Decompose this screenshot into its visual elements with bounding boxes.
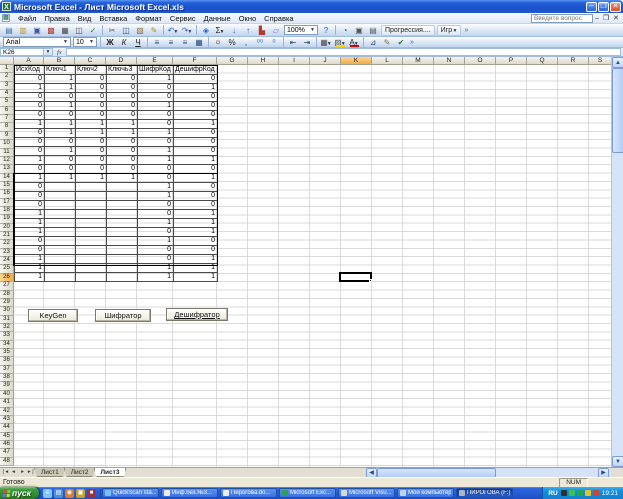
select-all-corner[interactable] [0,57,14,65]
cell-A5[interactable]: 0 [15,102,45,111]
column-header-R[interactable]: R [558,57,589,65]
cell-A18[interactable]: 1 [15,219,45,228]
align-right-icon[interactable]: ≡ [179,37,192,48]
cell-E17[interactable]: 0 [138,210,174,219]
row-header-39[interactable]: 39 [0,382,14,390]
cell-B7[interactable]: 1 [45,120,76,129]
row-header-21[interactable]: 21 [0,232,14,240]
cell-D22[interactable] [107,255,138,264]
cell-C22[interactable] [76,255,107,264]
row-header-5[interactable]: 5 [0,98,14,106]
cell-C15[interactable] [76,192,107,201]
quick-launch-ie-icon[interactable]: e [43,489,52,498]
row-header-17[interactable]: 17 [0,199,14,207]
row-header-16[interactable]: 16 [0,190,14,198]
row-header-40[interactable]: 40 [0,391,14,399]
row-header-22[interactable]: 22 [0,240,14,248]
cell-B9[interactable]: 0 [45,138,76,147]
cell-D11[interactable]: 0 [107,156,138,165]
paste-icon[interactable]: ▧ [134,25,147,36]
scroll-up-icon[interactable]: ▲ [612,57,623,68]
tray-icon-shield[interactable] [561,490,567,496]
selected-cell-K26[interactable] [339,272,372,282]
cell-A20[interactable]: 0 [15,237,45,246]
cell-E12[interactable]: 0 [138,165,174,174]
undo-icon-dropdown[interactable]: ▼ [173,29,178,35]
cell-C18[interactable] [76,219,107,228]
column-header-K[interactable]: K [341,57,372,65]
quick-launch-folder-icon[interactable]: ▣ [76,489,85,498]
vertical-scrollbar[interactable]: ▲ ▼ [611,57,623,467]
row-header-31[interactable]: 31 [0,316,14,324]
cell-B13[interactable]: 1 [45,174,76,183]
cell-C23[interactable] [76,264,107,273]
cell-E19[interactable]: 0 [138,228,174,237]
cell-A24[interactable]: 1 [15,273,45,282]
cell-F2[interactable]: 0 [174,75,218,84]
cell-F20[interactable]: 0 [174,237,218,246]
name-box-dropdown-icon[interactable]: ▼ [44,48,53,56]
close-button[interactable]: ✕ [610,2,621,12]
cell-F9[interactable]: 0 [174,138,218,147]
workbook-minimize-icon[interactable]: – [593,14,601,23]
row-header-33[interactable]: 33 [0,332,14,340]
row-header-2[interactable]: 2 [0,73,14,81]
font-name-dropdown-icon[interactable]: ▼ [63,38,68,47]
column-header-M[interactable]: M [403,57,434,65]
cell-B21[interactable] [45,246,76,255]
cell-C3[interactable]: 0 [76,84,107,93]
cell-C17[interactable] [76,210,107,219]
decipher-button[interactable]: Дешифратор [166,308,228,321]
cell-C16[interactable] [76,201,107,210]
row-header-1[interactable]: 1 [0,65,14,73]
cell-A16[interactable]: 0 [15,201,45,210]
cell-F15[interactable]: 0 [174,192,218,201]
cell-A3[interactable]: 1 [15,84,45,93]
cell-E15[interactable]: 1 [138,192,174,201]
row-header-27[interactable]: 27 [0,282,14,290]
igr-button[interactable]: Игр ▼ [437,25,462,36]
cell-F10[interactable]: 0 [174,147,218,156]
row-header-3[interactable]: 3 [0,82,14,90]
task-button-doc-infbez[interactable]: Инф.без.№3... [161,488,218,498]
cell-B4[interactable]: 0 [45,93,76,102]
cell-E13[interactable]: 0 [138,174,174,183]
autosum-icon-dropdown[interactable]: ▼ [220,29,225,35]
first-sheet-icon[interactable]: ❘◂ [0,468,9,477]
cell-D21[interactable] [107,246,138,255]
menu-file[interactable]: Файл [14,13,40,24]
cell-D2[interactable]: 0 [107,75,138,84]
row-header-28[interactable]: 28 [0,291,14,299]
cell-B23[interactable] [45,264,76,273]
cipher-button[interactable]: Шифратор [95,309,151,322]
row-header-13[interactable]: 13 [0,165,14,173]
cell-F8[interactable]: 0 [174,129,218,138]
help-icon[interactable]: ? [320,25,333,36]
cell-C7[interactable]: 1 [76,120,107,129]
start-button[interactable]: пуск [0,487,39,499]
sort-ascending-icon[interactable]: ↓ [228,25,241,36]
hyperlink-icon[interactable]: ◈ [200,25,213,36]
row-header-38[interactable]: 38 [0,374,14,382]
row-header-26[interactable]: 26 [0,274,14,282]
cell-C14[interactable] [76,183,107,192]
cell-C2[interactable]: 0 [76,75,107,84]
cell-C19[interactable] [76,228,107,237]
font-color-icon[interactable]: А▼ [348,37,361,48]
row-header-7[interactable]: 7 [0,115,14,123]
cell-D20[interactable] [107,237,138,246]
name-box[interactable]: K26 [0,48,44,56]
row-header-9[interactable]: 9 [0,132,14,140]
cell-F14[interactable]: 0 [174,183,218,192]
column-header-F[interactable]: F [173,57,217,65]
cell-A4[interactable]: 0 [15,93,45,102]
progression-button[interactable]: Прогрессия.... [381,25,435,36]
row-header-18[interactable]: 18 [0,207,14,215]
zoom-box[interactable]: 100%▼ [284,25,318,35]
redo-icon-dropdown[interactable]: ▼ [187,29,192,35]
cell-E11[interactable]: 1 [138,156,174,165]
cell-D6[interactable]: 0 [107,111,138,120]
cell-A19[interactable]: 1 [15,228,45,237]
cell-F21[interactable]: 0 [174,246,218,255]
task-button-excel[interactable]: Microsoft Exc... [279,488,336,498]
row-header-29[interactable]: 29 [0,299,14,307]
cell-C11[interactable]: 0 [76,156,107,165]
cell-D23[interactable] [107,264,138,273]
cell-E5[interactable]: 1 [138,102,174,111]
cell-F4[interactable]: 0 [174,93,218,102]
cell-D4[interactable]: 0 [107,93,138,102]
column-header-Q[interactable]: Q [527,57,558,65]
column-header-J[interactable]: J [310,57,341,65]
save-icon[interactable]: ▣ [31,25,44,36]
format-painter-icon[interactable]: ✎ [148,25,161,36]
accept-icon[interactable]: ✔ [395,37,408,48]
cell-F19[interactable]: 1 [174,228,218,237]
cell-F5[interactable]: 0 [174,102,218,111]
cell-E14[interactable]: 1 [138,183,174,192]
cell-E7[interactable]: 0 [138,120,174,129]
cell-D10[interactable]: 0 [107,147,138,156]
tab-лист2[interactable]: Лист2 [64,468,96,477]
row-header-15[interactable]: 15 [0,182,14,190]
cell-D13[interactable]: 1 [107,174,138,183]
cell-C20[interactable] [76,237,107,246]
igr-button-dropdown[interactable]: ▼ [451,28,457,34]
undo-icon[interactable]: ↶▼ [167,25,180,36]
row-header-45[interactable]: 45 [0,433,14,441]
cell-A6[interactable]: 0 [15,111,45,120]
cut-icon[interactable]: ✂ [106,25,119,36]
cell-B22[interactable] [45,255,76,264]
cell-F16[interactable]: 0 [174,201,218,210]
cell-B24[interactable] [45,273,76,282]
cell-D15[interactable] [107,192,138,201]
vertical-scroll-thumb[interactable] [612,68,623,153]
cell-B3[interactable]: 1 [45,84,76,93]
cell-D8[interactable]: 1 [107,129,138,138]
cell-F6[interactable]: 0 [174,111,218,120]
camera-icon[interactable]: ▣ [353,25,366,36]
tray-icon-volume[interactable] [585,490,591,496]
drawing-icon[interactable]: ▱ [270,25,283,36]
cell-B12[interactable]: 0 [45,165,76,174]
cell-B16[interactable] [45,201,76,210]
prev-sheet-icon[interactable]: ◂ [9,468,18,477]
cell-E21[interactable]: 0 [138,246,174,255]
cell-E9[interactable]: 0 [138,138,174,147]
spelling-icon[interactable]: ✓ [87,25,100,36]
copy-icon[interactable]: ◫ [120,25,133,36]
menu-format[interactable]: Формат [131,13,166,24]
font-size-dropdown-icon[interactable]: ▼ [89,38,94,47]
cell-F18[interactable]: 1 [174,219,218,228]
cell-F17[interactable]: 1 [174,210,218,219]
toolbar-options-icon[interactable]: » [462,27,470,34]
column-header-G[interactable]: G [217,57,248,65]
cell-D3[interactable]: 0 [107,84,138,93]
cell-B5[interactable]: 1 [45,102,76,111]
row-header-20[interactable]: 20 [0,224,14,232]
chart-wizard-icon[interactable]: ▙ [256,25,269,36]
cell-F22[interactable]: 1 [174,255,218,264]
cell-F12[interactable]: 0 [174,165,218,174]
cell-F13[interactable]: 1 [174,174,218,183]
row-header-36[interactable]: 36 [0,357,14,365]
cell-F11[interactable]: 1 [174,156,218,165]
cell-E22[interactable]: 0 [138,255,174,264]
column-header-P[interactable]: P [496,57,527,65]
cell-D17[interactable] [107,210,138,219]
cell-F3[interactable]: 1 [174,84,218,93]
decrease-decimal-icon[interactable]: ⁰ [268,37,281,48]
menu-insert[interactable]: Вставка [95,13,131,24]
cell-A15[interactable]: 0 [15,192,45,201]
row-header-10[interactable]: 10 [0,140,14,148]
cell-A22[interactable]: 1 [15,255,45,264]
row-header-46[interactable]: 46 [0,441,14,449]
font-size-box[interactable]: 10▼ [73,37,97,47]
column-header-B[interactable]: B [44,57,75,65]
increase-indent-icon[interactable]: ⇥ [301,37,314,48]
restore-button[interactable]: ❐ [598,2,609,12]
cell-B11[interactable]: 0 [45,156,76,165]
cell-B18[interactable] [45,219,76,228]
cell-A21[interactable]: 0 [15,246,45,255]
cell-A23[interactable]: 1 [15,264,45,273]
pen-icon[interactable]: ✎ [381,37,394,48]
bold-icon[interactable]: Ж [104,37,117,48]
menu-window[interactable]: Окно [235,13,260,24]
cell-E2[interactable]: 1 [138,75,174,84]
row-header-4[interactable]: 4 [0,90,14,98]
underline-icon[interactable]: Ч [132,37,145,48]
row-header-42[interactable]: 42 [0,408,14,416]
column-header-H[interactable]: H [248,57,279,65]
font-name-box[interactable]: Arial▼ [3,37,71,47]
draw-select-icon[interactable]: ⊿ [367,37,380,48]
keygen-button[interactable]: KeyGen [28,309,78,322]
column-header-A[interactable]: A [14,57,44,65]
task-button-quickscan[interactable]: QuickScan sta... [102,488,159,498]
cell-A17[interactable]: 1 [15,210,45,219]
quick-launch-desktop-icon[interactable]: ▤ [54,489,63,498]
fill-handle[interactable] [369,279,372,282]
task-button-visual[interactable]: Microsoft Visu... [338,488,395,498]
scroll-down-icon[interactable]: ▼ [612,456,623,467]
cell-D18[interactable] [107,219,138,228]
cell-C13[interactable]: 1 [76,174,107,183]
fill-color-icon[interactable]: ▨▼ [334,37,347,48]
row-header-25[interactable]: 25 [0,265,14,273]
menu-tools[interactable]: Сервис [166,13,200,24]
borders-icon[interactable]: ▦▼ [320,37,333,48]
decrease-indent-icon[interactable]: ⇤ [287,37,300,48]
cell-C4[interactable]: 0 [76,93,107,102]
cell-E20[interactable]: 1 [138,237,174,246]
task-button-doc-pirogova[interactable]: Пирогова.do... [220,488,277,498]
document-tool-icon[interactable]: ▤ [367,25,380,36]
cell-E3[interactable]: 0 [138,84,174,93]
row-header-47[interactable]: 47 [0,449,14,457]
quick-launch-app-icon[interactable]: ■ [87,489,96,498]
next-sheet-icon[interactable]: ▸ [18,468,27,477]
italic-icon[interactable]: К [118,37,131,48]
cell-B2[interactable]: 1 [45,75,76,84]
column-header-E[interactable]: E [137,57,173,65]
cell-D19[interactable] [107,228,138,237]
cell-A9[interactable]: 0 [15,138,45,147]
cell-A12[interactable]: 0 [15,165,45,174]
cell-B15[interactable] [45,192,76,201]
cell-F24[interactable]: 1 [174,273,218,282]
cell-A10[interactable]: 0 [15,147,45,156]
cell-B8[interactable]: 1 [45,129,76,138]
row-header-34[interactable]: 34 [0,341,14,349]
cell-D16[interactable] [107,201,138,210]
print-preview-icon[interactable]: ◫ [73,25,86,36]
cell-C9[interactable]: 0 [76,138,107,147]
align-left-icon[interactable]: ≡ [151,37,164,48]
column-header-O[interactable]: O [465,57,496,65]
toolbar2-options-icon[interactable]: » [408,39,416,46]
print-icon[interactable]: ▦ [59,25,72,36]
menu-help[interactable]: Справка [260,13,297,24]
column-header-N[interactable]: N [434,57,465,65]
redo-icon[interactable]: ↷▼ [181,25,194,36]
new-icon[interactable]: ▤ [3,25,16,36]
row-header-41[interactable]: 41 [0,399,14,407]
align-center-icon[interactable]: ≡ [165,37,178,48]
column-header-S[interactable]: S [589,57,611,65]
tray-icon-update[interactable] [593,490,599,496]
open-icon[interactable]: ▥ [17,25,30,36]
row-header-37[interactable]: 37 [0,366,14,374]
row-header-14[interactable]: 14 [0,174,14,182]
row-header-19[interactable]: 19 [0,215,14,223]
task-button-my-computer[interactable]: Мой компьютер [397,488,454,498]
cell-A7[interactable]: 1 [15,120,45,129]
cell-E16[interactable]: 0 [138,201,174,210]
row-header-35[interactable]: 35 [0,349,14,357]
row-header-8[interactable]: 8 [0,123,14,131]
column-header-C[interactable]: C [75,57,106,65]
increase-decimal-icon[interactable]: ⁰⁰ [254,37,267,48]
cell-B20[interactable] [45,237,76,246]
row-header-6[interactable]: 6 [0,107,14,115]
column-header-I[interactable]: I [279,57,310,65]
tray-icon-antivirus[interactable] [569,490,575,496]
row-header-23[interactable]: 23 [0,249,14,257]
custom-tool-icon-1[interactable]: ◔ [339,25,352,36]
cell-F7[interactable]: 1 [174,120,218,129]
autosum-icon[interactable]: Σ▼ [214,25,227,36]
merge-center-icon[interactable]: ▦ [193,37,206,48]
permission-icon[interactable]: ▩ [45,25,58,36]
cell-F23[interactable]: 1 [174,264,218,273]
cell-C10[interactable]: 0 [76,147,107,156]
cell-E24[interactable]: 1 [138,273,174,282]
zoom-dropdown-icon[interactable]: ▼ [310,26,315,35]
column-header-L[interactable]: L [372,57,403,65]
cell-B10[interactable]: 1 [45,147,76,156]
cell-C6[interactable]: 0 [76,111,107,120]
cell-C12[interactable]: 0 [76,165,107,174]
minimize-button[interactable]: ─ [586,2,597,12]
row-header-48[interactable]: 48 [0,458,14,466]
cell-D14[interactable] [107,183,138,192]
quick-launch-media-icon[interactable]: ◉ [65,489,74,498]
tab-лист1[interactable]: Лист1 [34,468,66,477]
formula-input[interactable] [66,48,621,56]
column-header-D[interactable]: D [106,57,137,65]
tray-icon-network[interactable] [577,490,583,496]
tab-лист3[interactable]: Лист3 [94,468,127,477]
row-header-11[interactable]: 11 [0,149,14,157]
borders-icon-dropdown[interactable]: ▼ [327,41,332,47]
cell-C21[interactable] [76,246,107,255]
cell-E4[interactable]: 0 [138,93,174,102]
row-header-43[interactable]: 43 [0,416,14,424]
cell-D12[interactable]: 0 [107,165,138,174]
ask-question-input[interactable] [531,14,593,23]
percent-icon[interactable]: % [226,37,239,48]
cell-E23[interactable]: 1 [138,264,174,273]
worksheet-grid[interactable]: ABCDEFGHIJKLMNOPQRS 12345678910111213141… [0,57,611,467]
cell-A8[interactable]: 0 [15,129,45,138]
currency-icon[interactable]: ¤ [212,37,225,48]
workbook-restore-icon[interactable]: ❐ [601,14,611,23]
language-indicator[interactable]: RU [546,490,559,497]
row-header-44[interactable]: 44 [0,424,14,432]
cell-A14[interactable]: 0 [15,183,45,192]
row-header-32[interactable]: 32 [0,324,14,332]
cell-D5[interactable]: 0 [107,102,138,111]
menu-edit[interactable]: Правка [40,13,73,24]
cell-A11[interactable]: 1 [15,156,45,165]
task-button-drive-f[interactable]: ПИРОГОВА (F:) [456,488,513,498]
cell-A2[interactable]: 0 [15,75,45,84]
cell-D9[interactable]: 0 [107,138,138,147]
insert-function-icon[interactable]: fx [53,49,66,56]
cell-B17[interactable] [45,210,76,219]
row-header-30[interactable]: 30 [0,307,14,315]
menu-data[interactable]: Данные [200,13,235,24]
